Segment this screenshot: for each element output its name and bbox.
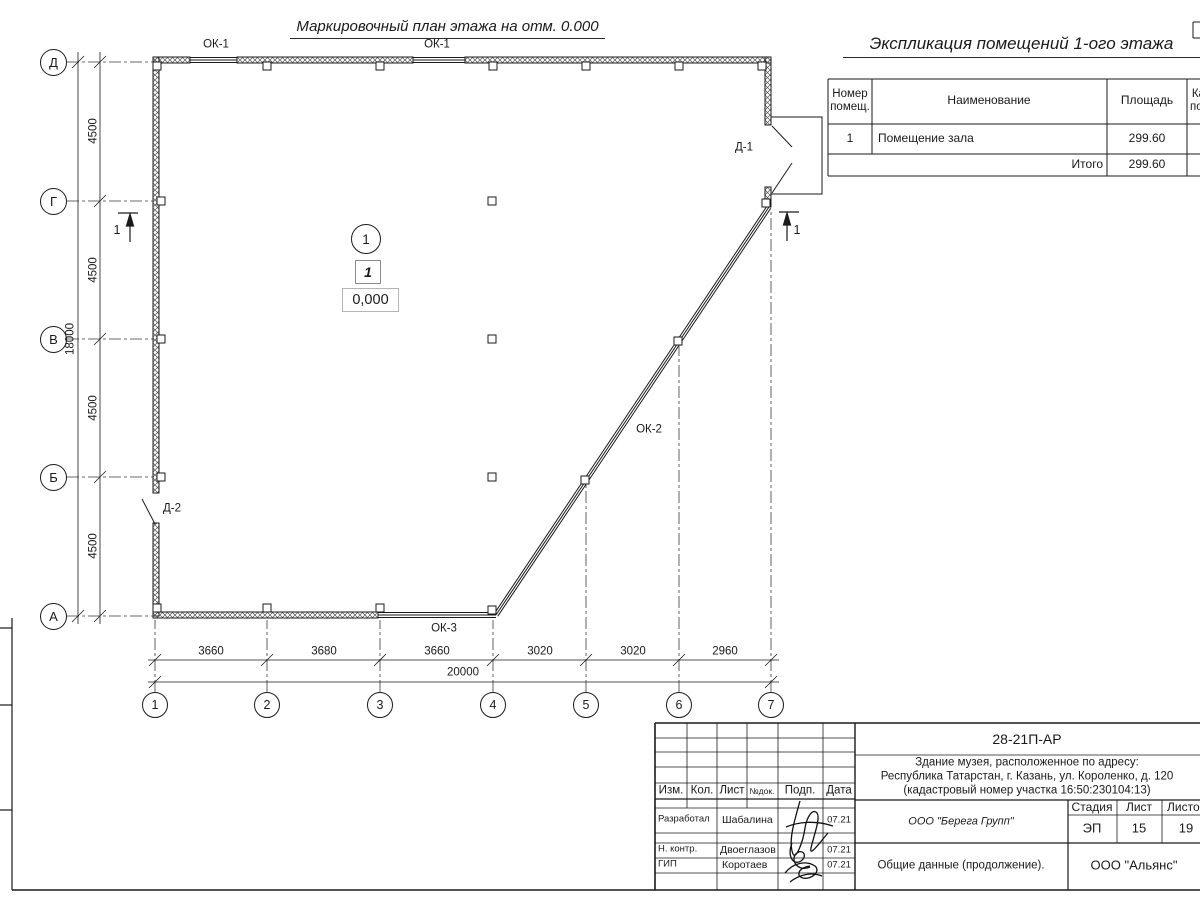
mark-d2: Д-2 [163, 502, 181, 515]
signatures [785, 801, 833, 882]
date-nkontr: 07.21 [827, 846, 851, 857]
axis-row-v: В [40, 326, 67, 353]
section-label-right: 1 [794, 223, 801, 237]
door-d2 [142, 499, 155, 524]
address-line1: Здание музея, расположенное по адресу: [915, 756, 1139, 769]
col-data: Дата [826, 784, 851, 797]
dimension-lines [72, 52, 779, 688]
room-row-name: Помещение зала [878, 132, 974, 146]
section-arrows [118, 212, 799, 242]
room-row-number: 1 [847, 132, 854, 146]
mark-ok2: ОК-2 [636, 423, 662, 436]
address-line2: Республика Татарстан, г. Казань, ул. Кор… [881, 770, 1174, 783]
window-ok2-diagonal [494, 206, 771, 616]
dim-3660-a: 3660 [198, 645, 224, 658]
col-izm: Изм. [659, 784, 684, 797]
dim-total-20000: 20000 [447, 666, 479, 679]
explication-title: Экспликация помещений 1-ого этажа [843, 34, 1200, 58]
col-ndoc: №док. [750, 787, 775, 797]
room-number-box: 1 [355, 260, 381, 284]
doc-title: Общие данные (продолжение). [877, 859, 1044, 872]
axis-row-d: Д [40, 49, 67, 76]
window-ok1-right [413, 58, 465, 63]
mark-ok1-right: ОК-1 [424, 38, 450, 51]
axis-col-3: 3 [367, 692, 393, 718]
role-razrabotal: Разработал [658, 815, 710, 826]
address-line3: (кадастровый номер участка 16:50:230104:… [903, 784, 1150, 797]
room-marker: 1 [351, 224, 381, 254]
name-dvoeglazov: Двоеглазов [720, 844, 776, 856]
stage-col-header: Стадия [1072, 801, 1113, 815]
axis-col-5: 5 [573, 692, 599, 718]
role-nkontr: Н. контр. [658, 845, 697, 856]
axis-col-7: 7 [758, 692, 784, 718]
dim-3020-a: 3020 [527, 645, 553, 658]
axis-row-g: Г [40, 188, 67, 215]
date-razrabotal: 07.21 [827, 816, 851, 827]
sheets-value: 19 [1179, 822, 1193, 837]
dim-3660-b: 3660 [424, 645, 450, 658]
sheet-value: 15 [1132, 822, 1146, 837]
dim-4500-b: 4500 [87, 257, 100, 283]
explication-col-number: Номер помещ. [830, 88, 870, 114]
mark-ok3: ОК-3 [431, 622, 457, 635]
window-ok3 [378, 613, 496, 618]
col-list: Лист [720, 784, 745, 797]
sheet-frame [0, 618, 1200, 890]
dim-4500-d: 4500 [87, 533, 100, 559]
dim-4500-c: 4500 [87, 395, 100, 421]
total-area: 299.60 [1129, 158, 1166, 172]
mark-d1: Д-1 [735, 141, 753, 154]
total-label: Итого [1072, 158, 1103, 172]
listov-col-header: Листов [1167, 801, 1200, 815]
dim-3020-b: 3020 [620, 645, 646, 658]
explication-col-area: Площадь [1121, 94, 1173, 108]
door-d1 [771, 117, 822, 194]
col-podp: Подп. [785, 784, 816, 797]
name-shabalina: Шабалина [722, 814, 773, 826]
doc-number: 28-21П-АР [992, 731, 1061, 747]
axis-row-b: Б [40, 464, 67, 491]
axis-lines [67, 62, 771, 692]
explication-col-category: Кат. пом. [1190, 88, 1200, 114]
stage-value: ЭП [1083, 822, 1102, 837]
date-gip: 07.21 [827, 861, 851, 872]
name-korotaev: Коротаев [722, 859, 767, 871]
axis-col-2: 2 [254, 692, 280, 718]
window-ok1-left [190, 58, 237, 63]
axis-col-6: 6 [666, 692, 692, 718]
plan-title: Маркировочный план этажа на отм. 0.000 [290, 18, 605, 39]
axis-row-a: А [40, 603, 67, 630]
list-col-header: Лист [1126, 801, 1152, 815]
section-label-left: 1 [114, 223, 121, 237]
company-name: ООО "Берега Групп" [908, 816, 1013, 829]
explication-col-name: Наименование [947, 94, 1030, 108]
org-name: ООО "Альянс" [1091, 859, 1178, 874]
dim-2960: 2960 [712, 645, 738, 658]
elevation-box: 0,000 [342, 288, 399, 312]
mark-ok1-left: ОК-1 [203, 38, 229, 51]
role-gip: ГИП [658, 860, 677, 871]
dim-4500-a: 4500 [87, 118, 100, 144]
room-row-area: 299.60 [1129, 132, 1166, 146]
axis-col-1: 1 [142, 692, 168, 718]
drawing-sheet: Маркировочный план этажа на отм. 0.000 Д… [0, 0, 1200, 900]
column-markers [153, 62, 770, 614]
dim-3680: 3680 [311, 645, 337, 658]
axis-col-4: 4 [480, 692, 506, 718]
dim-total-18000: 18000 [64, 323, 77, 355]
col-kol: Кол. [691, 784, 714, 797]
